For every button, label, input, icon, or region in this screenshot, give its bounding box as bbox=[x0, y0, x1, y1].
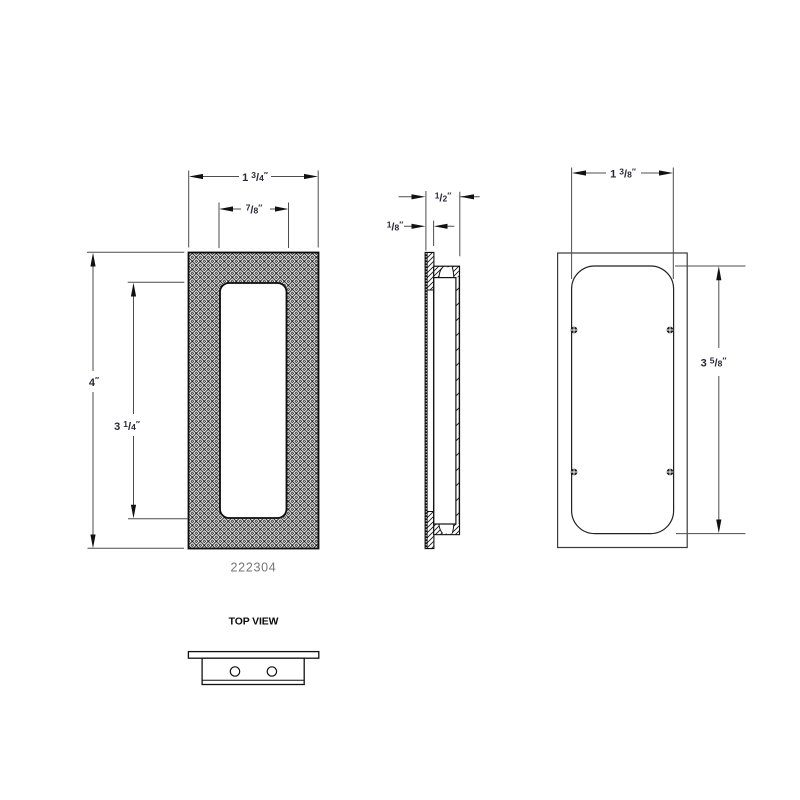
svg-text:TOP VIEW: TOP VIEW bbox=[229, 617, 279, 628]
svg-text:222304: 222304 bbox=[231, 561, 277, 575]
